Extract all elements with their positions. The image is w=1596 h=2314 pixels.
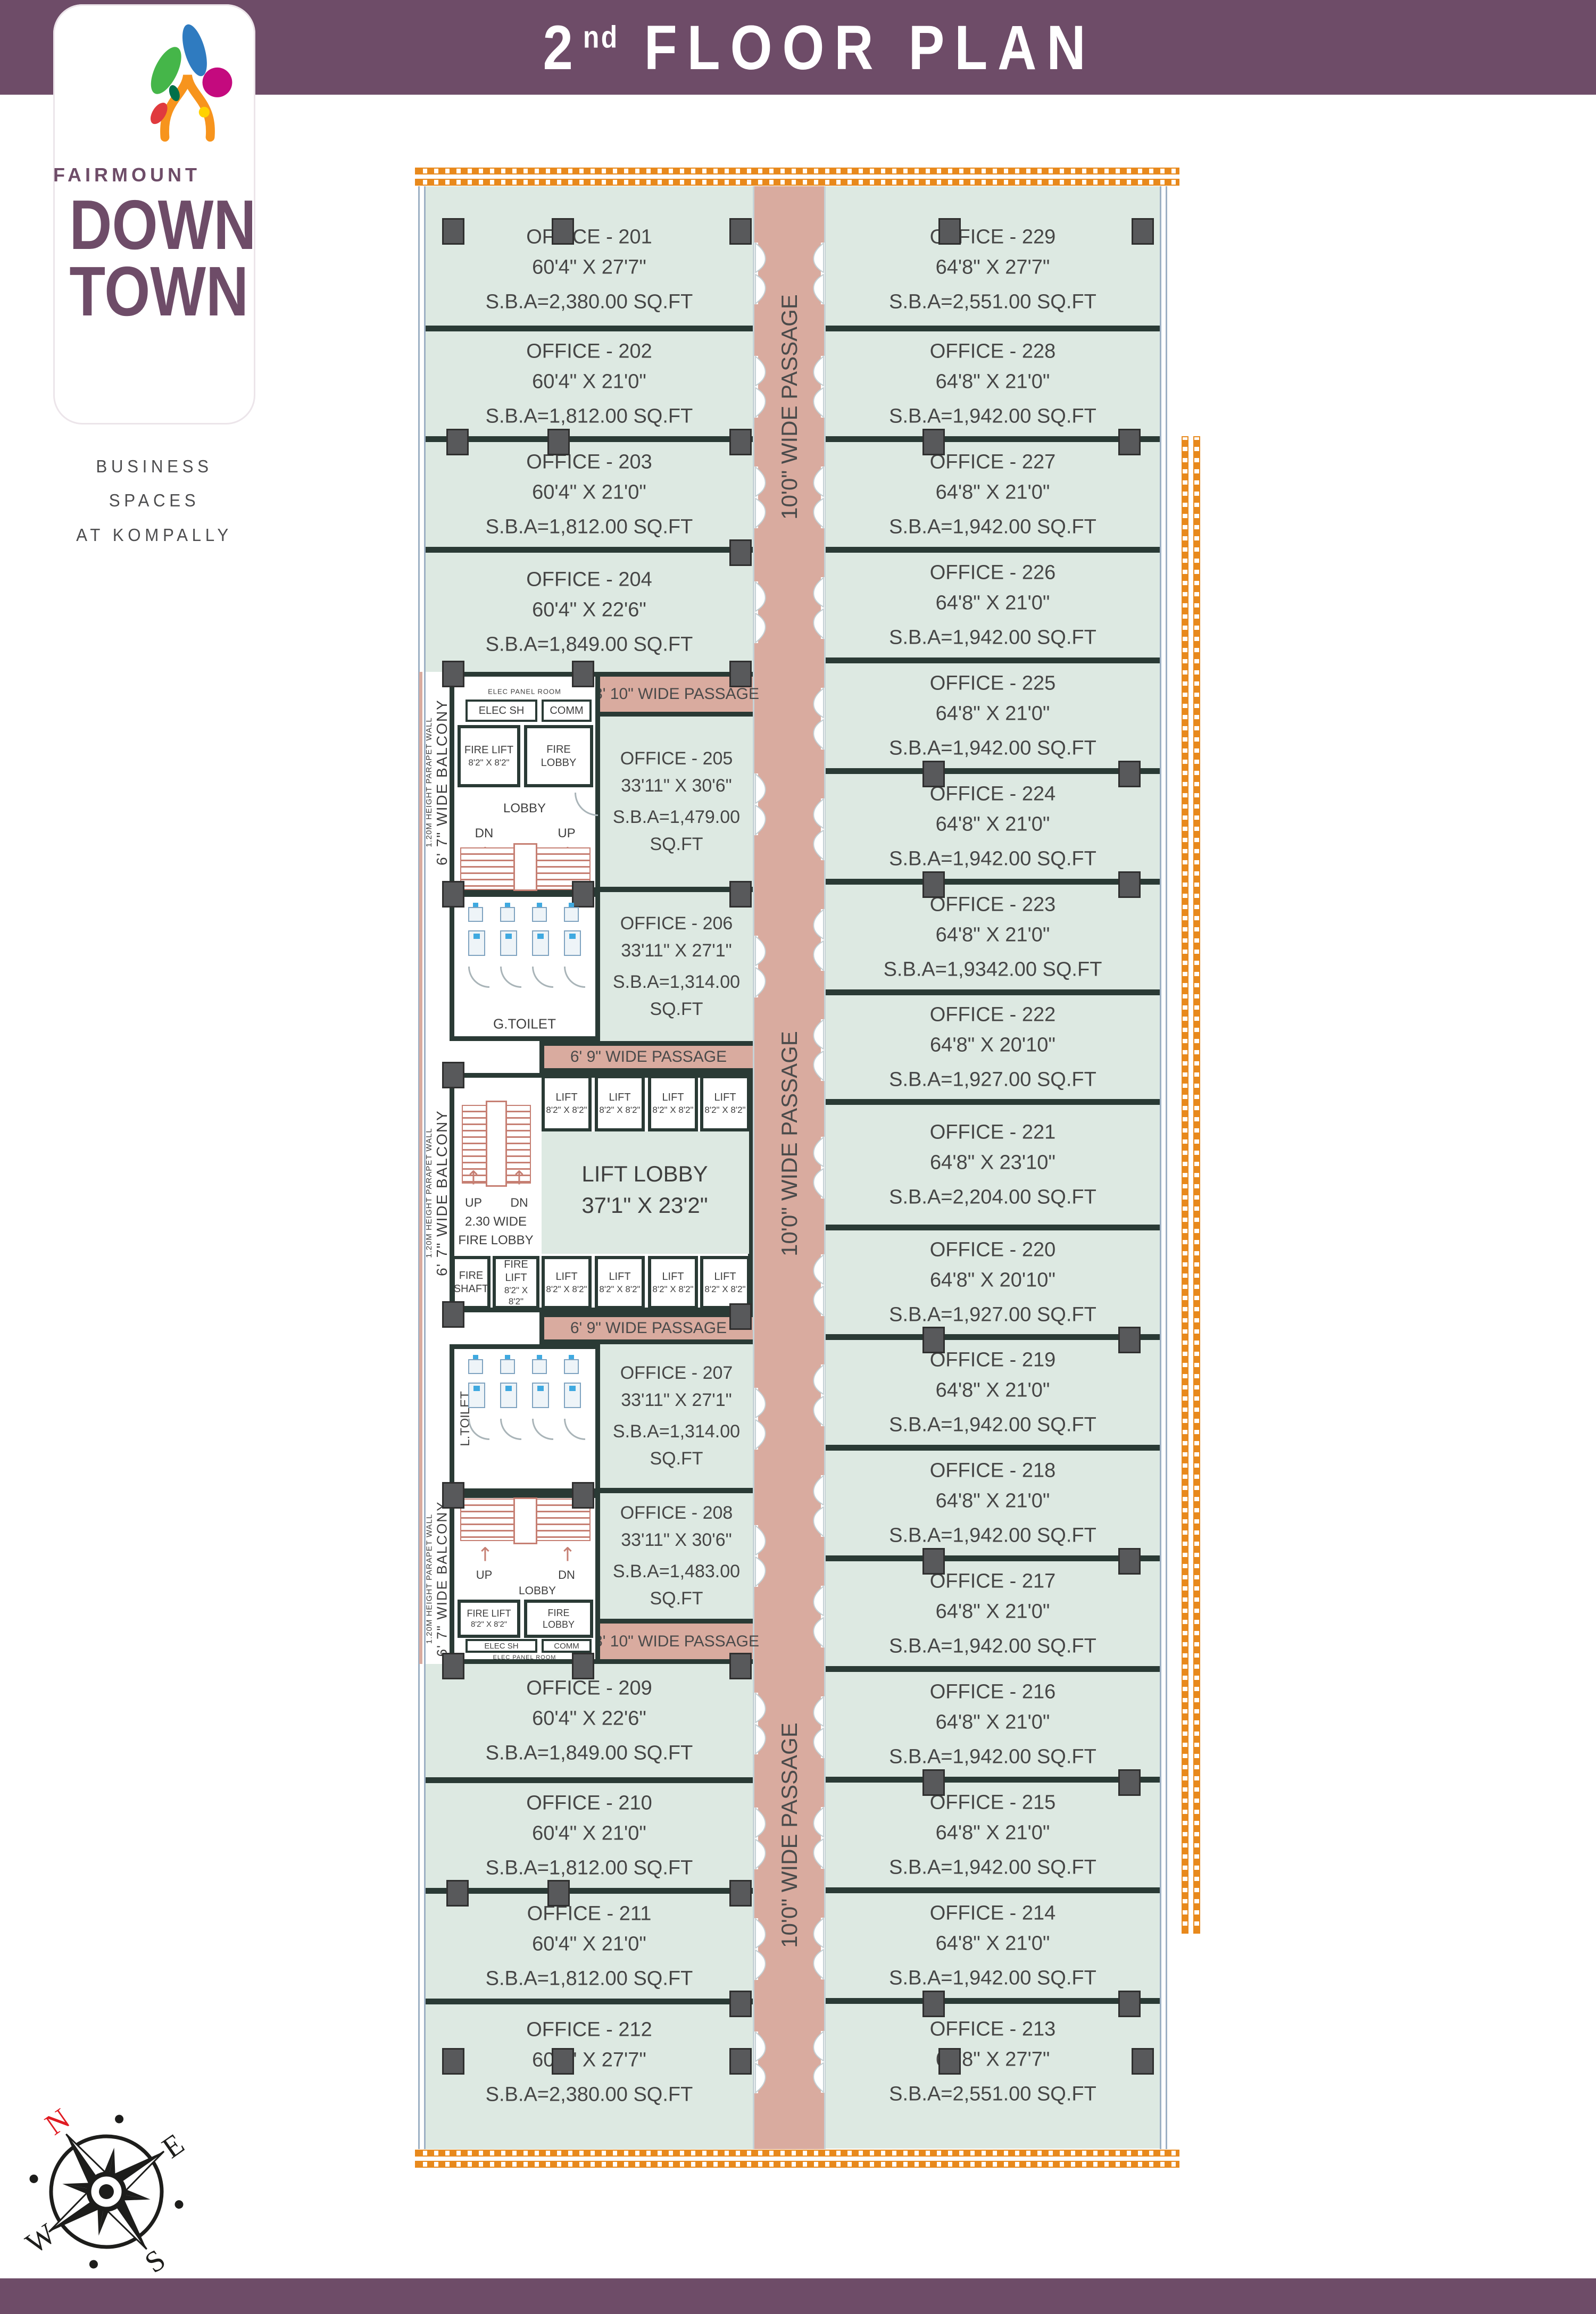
office-label-229: OFFICE - 22964'8" X 27'7"S.B.A=2,551.00 … (826, 222, 1160, 318)
column-pillar (442, 2048, 464, 2075)
stair-landing-bottom (513, 1497, 537, 1544)
office-label-228: OFFICE - 22864'8" X 21'0"S.B.A=1,942.00 … (826, 336, 1160, 431)
office-dims-214: 64'8" X 21'0" (826, 1928, 1160, 1959)
door-symbol-228 (807, 355, 825, 419)
office-name-217: OFFICE - 217 (826, 1566, 1160, 1596)
door-symbol-227 (807, 465, 825, 529)
office-row-204: OFFICE - 20460'4" X 22'6"S.B.A=1,849.00 … (426, 553, 753, 672)
office-dims-207: 33'11" X 27'1" (600, 1387, 753, 1414)
column-pillar (442, 1653, 464, 1679)
office-dims-223: 64'8" X 21'0" (826, 920, 1160, 950)
office-label-213: OFFICE - 21364'8" X 27'7"S.B.A=2,551.00 … (826, 2014, 1160, 2109)
fire-lift-label: FIRE LIFT (467, 1608, 511, 1620)
office-dims-220: 64'8" X 20'10" (826, 1265, 1160, 1295)
office-dims-209: 60'4" X 22'6" (426, 1703, 753, 1734)
office-label-216: OFFICE - 21664'8" X 21'0"S.B.A=1,942.00 … (826, 1677, 1160, 1772)
office-sba-205: S.B.A=1,479.00 SQ.FT (600, 804, 753, 858)
stair-arrow-up: ↑ (511, 1168, 527, 1189)
office-name-207: OFFICE - 207 (600, 1360, 753, 1387)
office-label-220: OFFICE - 22064'8" X 20'10"S.B.A=1,927.00… (826, 1235, 1160, 1330)
door-symbol-220 (807, 1253, 825, 1317)
office-dims-218: 64'8" X 21'0" (826, 1486, 1160, 1516)
office-name-218: OFFICE - 218 (826, 1455, 1160, 1486)
office-sba-204: S.B.A=1,849.00 SQ.FT (426, 630, 753, 660)
office-label-214: OFFICE - 21464'8" X 21'0"S.B.A=1,942.00 … (826, 1898, 1160, 1993)
up-label-top: UP (558, 826, 575, 841)
lift-cell-label: LIFT (609, 1270, 630, 1284)
office-dims-205: 33'11" X 30'6" (600, 772, 753, 800)
office-name-221: OFFICE - 221 (826, 1117, 1160, 1147)
page-title: 2nd FLOOR PLAN (543, 12, 1095, 84)
office-label-225: OFFICE - 22564'8" X 21'0"S.B.A=1,942.00 … (826, 668, 1160, 763)
office-label-211: OFFICE - 21160'4" X 21'0"S.B.A=1,812.00 … (426, 1899, 753, 1994)
compass-north-label: N (39, 2102, 76, 2142)
lift-cell-size: 8'2" X 8'2" (496, 1285, 536, 1308)
office-dims-219: 64'8" X 21'0" (826, 1375, 1160, 1405)
lobby-label-top: LOBBY (503, 801, 546, 816)
office-label-207: OFFICE - 20733'11" X 27'1"S.B.A=1,314.00… (600, 1360, 753, 1472)
flush-icon (505, 934, 512, 939)
column-pillar (552, 2048, 574, 2075)
flush-icon (537, 1386, 544, 1391)
tap-icon (505, 1355, 510, 1359)
office-name-220: OFFICE - 220 (826, 1235, 1160, 1265)
logo-card: FAIRMOUNT DOWN TOWN (53, 4, 255, 424)
office-name-216: OFFICE - 216 (826, 1677, 1160, 1707)
tap-icon (537, 903, 542, 907)
office-label-212: OFFICE - 21260'4" X 27'7"S.B.A=2,380.00 … (426, 2015, 753, 2110)
office-label-210: OFFICE - 21060'4" X 21'0"S.B.A=1,812.00 … (426, 1788, 753, 1883)
office-name-214: OFFICE - 214 (826, 1898, 1160, 1928)
column-pillar (1118, 1769, 1141, 1796)
dn-label-top: DN (475, 826, 494, 841)
office-name-215: OFFICE - 215 (826, 1787, 1160, 1818)
office-sba-202: S.B.A=1,812.00 SQ.FT (426, 401, 753, 431)
office-dims-210: 60'4" X 21'0" (426, 1818, 753, 1849)
door-symbol-218 (807, 1474, 825, 1538)
central-passage-label-middle: 10'0" WIDE PASSAGE (777, 1031, 802, 1256)
office-name-211: OFFICE - 211 (426, 1899, 753, 1929)
office-dims-228: 64'8" X 21'0" (826, 367, 1160, 397)
lift-cell-size: 8'2" X 8'2" (704, 1104, 745, 1116)
office-sba-227: S.B.A=1,942.00 SQ.FT (826, 512, 1160, 542)
office-label-208: OFFICE - 20833'11" X 30'6"S.B.A=1,483.00… (600, 1500, 753, 1612)
column-pillar (1118, 871, 1141, 898)
office-row-208: OFFICE - 20833'11" X 30'6"S.B.A=1,483.00… (600, 1493, 753, 1619)
door-symbol-205 (754, 772, 772, 836)
passage-69-top: 6' 9" WIDE PASSAGE (539, 1041, 753, 1073)
office-sba-201: S.B.A=2,380.00 SQ.FT (426, 287, 753, 318)
balcony-top: 1.20M HEIGHT PARAPET WALL 6' 7" WIDE BAL… (423, 672, 451, 892)
office-sba-219: S.B.A=1,942.00 SQ.FT (826, 1410, 1160, 1440)
sink-fixture (532, 1359, 547, 1374)
office-sba-212: S.B.A=2,380.00 SQ.FT (426, 2079, 753, 2110)
office-name-223: OFFICE - 223 (826, 889, 1160, 920)
office-label-219: OFFICE - 21964'8" X 21'0"S.B.A=1,942.00 … (826, 1345, 1160, 1440)
fire-lift-size: 8'2" X 8'2" (468, 757, 509, 768)
column-pillar (938, 218, 961, 245)
column-pillar (572, 1653, 594, 1679)
office-sba-217: S.B.A=1,942.00 SQ.FT (826, 1631, 1160, 1661)
door-symbol-204 (754, 580, 772, 644)
office-dims-215: 64'8" X 21'0" (826, 1818, 1160, 1848)
door-symbol-219 (807, 1363, 825, 1427)
office-name-224: OFFICE - 224 (826, 779, 1160, 809)
office-row-210: OFFICE - 21060'4" X 21'0"S.B.A=1,812.00 … (426, 1783, 753, 1894)
stair-arrow-up: ↑ (560, 1544, 576, 1566)
dn-label-middle: DN (510, 1196, 528, 1210)
office-sba-209: S.B.A=1,849.00 SQ.FT (426, 1738, 753, 1768)
office-name-201: OFFICE - 201 (426, 222, 753, 253)
office-row-211: OFFICE - 21160'4" X 21'0"S.B.A=1,812.00 … (426, 1894, 753, 2004)
door-symbol-214 (807, 1917, 825, 1980)
office-name-203: OFFICE - 203 (426, 447, 753, 477)
office-row-223: OFFICE - 22364'8" X 21'0"S.B.A=1,9342.00… (826, 885, 1160, 995)
office-row-201: OFFICE - 20160'4" X 27'7"S.B.A=2,380.00 … (426, 186, 753, 331)
office-sba-220: S.B.A=1,927.00 SQ.FT (826, 1300, 1160, 1330)
column-pillar (446, 1880, 469, 1907)
office-name-204: OFFICE - 204 (426, 565, 753, 595)
lift-lobby-dims: 37'1" X 23'2" (581, 1190, 708, 1221)
office-row-227: OFFICE - 22764'8" X 21'0"S.B.A=1,942.00 … (826, 442, 1160, 553)
office-name-228: OFFICE - 228 (826, 336, 1160, 367)
office-name-210: OFFICE - 210 (426, 1788, 753, 1818)
lift-cell-size: 8'2" X 8'2" (546, 1104, 587, 1116)
flush-icon (505, 1386, 512, 1391)
office-name-229: OFFICE - 229 (826, 222, 1160, 253)
top-wall-hatch-outer (415, 168, 1179, 174)
office-row-229: OFFICE - 22964'8" X 27'7"S.B.A=2,551.00 … (826, 186, 1160, 331)
office-label-202: OFFICE - 20260'4" X 21'0"S.B.A=1,812.00 … (426, 336, 753, 431)
sink-fixture (532, 907, 547, 922)
office-sba-222: S.B.A=1,927.00 SQ.FT (826, 1064, 1160, 1095)
compass-west-label: W (20, 2217, 62, 2260)
fire-lobby-bottom: FIRE LOBBY (524, 1600, 593, 1638)
door-symbol-201 (754, 242, 772, 305)
office-dims-206: 33'11" X 27'1" (600, 937, 753, 964)
column-pillar (922, 1769, 945, 1796)
tagline-line2: AT KOMPALLY (59, 518, 251, 552)
lift-cell: LIFT8'2" X 8'2" (542, 1075, 592, 1131)
column-pillar (1118, 1548, 1141, 1575)
fire-lift-bottom: FIRE LIFT 8'2" X 8'2" (458, 1600, 520, 1638)
footer-band (0, 2278, 1596, 2314)
door-symbol-208 (754, 1524, 772, 1588)
office-label-209: OFFICE - 20960'4" X 22'6"S.B.A=1,849.00 … (426, 1673, 753, 1768)
office-dims-212: 60'4" X 27'7" (426, 2045, 753, 2075)
office-sba-214: S.B.A=1,942.00 SQ.FT (826, 1963, 1160, 1993)
elec-panel-room-label-bottom: ELEC PANEL ROOM (493, 1654, 556, 1661)
office-label-204: OFFICE - 20460'4" X 22'6"S.B.A=1,849.00 … (426, 565, 753, 660)
office-row-213: OFFICE - 21364'8" X 27'7"S.B.A=2,551.00 … (826, 2004, 1160, 2149)
office-dims-216: 64'8" X 21'0" (826, 1707, 1160, 1737)
balcony-label: 6' 7" WIDE BALCONY (434, 1501, 450, 1657)
office-sba-224: S.B.A=1,942.00 SQ.FT (826, 844, 1160, 874)
tap-icon (473, 1355, 478, 1359)
comm-room-bottom: COMM (542, 1639, 592, 1653)
office-dims-203: 60'4" X 21'0" (426, 477, 753, 507)
column-pillar (442, 1301, 464, 1328)
office-row-209: OFFICE - 20960'4" X 22'6"S.B.A=1,849.00 … (426, 1664, 753, 1783)
sink-fixture (468, 907, 483, 922)
lift-cell-size: SHAFT (454, 1283, 489, 1296)
logo-word-town: TOWN (69, 258, 239, 324)
fire-lobby-230-label: 2.30 WIDE FIRE LOBBY (458, 1213, 533, 1250)
dn-label-bottom: DN (558, 1568, 575, 1582)
column-pillar (1118, 761, 1141, 787)
comm-room: COMM (542, 700, 592, 722)
office-dims-204: 60'4" X 22'6" (426, 595, 753, 626)
lift-cell-label: LIFT (555, 1091, 577, 1104)
fire-lift-top: FIRE LIFT 8'2" X 8'2" (458, 725, 520, 787)
column-pillar (922, 429, 945, 455)
door-symbol-226 (807, 576, 825, 640)
logo-brand: FAIRMOUNT (53, 164, 179, 186)
office-label-215: OFFICE - 21564'8" X 21'0"S.B.A=1,942.00 … (826, 1787, 1160, 1883)
office-label-205: OFFICE - 20533'11" X 30'6"S.B.A=1,479.00… (600, 745, 753, 858)
left-office-column-top: OFFICE - 20160'4" X 27'7"S.B.A=2,380.00 … (426, 186, 753, 672)
lift-cell-size: 8'2" X 8'2" (652, 1284, 693, 1295)
column-pillar (442, 1482, 464, 1509)
door-symbol-203 (754, 465, 772, 529)
balcony-parapet-wall (419, 672, 422, 1664)
office-name-222: OFFICE - 222 (826, 1000, 1160, 1030)
office-row-202: OFFICE - 20260'4" X 21'0"S.B.A=1,812.00 … (426, 331, 753, 442)
central-passage-label-top: 10'0" WIDE PASSAGE (777, 294, 802, 520)
column-pillar (729, 429, 752, 455)
tagline-line1: BUSINESS SPACES (59, 450, 251, 518)
office-row-203: OFFICE - 20360'4" X 21'0"S.B.A=1,812.00 … (426, 442, 753, 553)
office-sba-203: S.B.A=1,812.00 SQ.FT (426, 512, 753, 542)
lift-cell: LIFT8'2" X 8'2" (595, 1075, 645, 1131)
office-row-215: OFFICE - 21564'8" X 21'0"S.B.A=1,942.00 … (826, 1783, 1160, 1893)
door-symbol-229 (807, 242, 825, 305)
central-passage-label-bottom: 10'0" WIDE PASSAGE (777, 1722, 802, 1948)
office-sba-210: S.B.A=1,812.00 SQ.FT (426, 1853, 753, 1883)
right-office-column: OFFICE - 22964'8" X 27'7"S.B.A=2,551.00 … (826, 186, 1160, 2149)
column-pillar (922, 871, 945, 898)
fire-lobby-label: FIRE (547, 1607, 569, 1619)
lift-lobby-name: LIFT LOBBY (581, 1159, 708, 1190)
column-pillar (1118, 1327, 1141, 1353)
fire-lift-label: FIRE LIFT (464, 744, 513, 757)
tap-icon (569, 1355, 574, 1359)
fire-lobby-label: FIRE (546, 743, 571, 756)
sink-fixture (564, 907, 579, 922)
logo-flower-icon (128, 23, 247, 148)
column-pillar (729, 1653, 752, 1679)
door-symbol-210 (754, 1807, 772, 1870)
up-label-middle: UP (465, 1196, 482, 1210)
office-name-226: OFFICE - 226 (826, 557, 1160, 588)
office-label-226: OFFICE - 22664'8" X 21'0"S.B.A=1,942.00 … (826, 557, 1160, 653)
lobby-label-bottom: LOBBY (519, 1585, 556, 1597)
door-symbol-213 (807, 2030, 825, 2094)
door-symbol-225 (807, 687, 825, 751)
lift-cell-size: 8'2" X 8'2" (704, 1284, 745, 1295)
door-symbol-224 (807, 797, 825, 861)
office-sba-211: S.B.A=1,812.00 SQ.FT (426, 1963, 753, 1994)
office-label-221: OFFICE - 22164'8" X 23'10"S.B.A=2,204.00… (826, 1117, 1160, 1212)
top-wall-hatch-inner (415, 179, 1179, 186)
flush-icon (473, 1386, 480, 1391)
column-pillar (729, 1880, 752, 1907)
flush-icon (569, 1386, 576, 1391)
door-symbol-207 (754, 1387, 772, 1451)
compass-east-label: E (156, 2127, 190, 2165)
balcony-bottom: 1.20M HEIGHT PARAPET WALL 6' 7" WIDE BAL… (423, 1493, 451, 1664)
door-symbol-216 (807, 1695, 825, 1759)
lift-cell-label: LIFT (609, 1091, 630, 1104)
column-pillar (922, 1327, 945, 1353)
office-row-218: OFFICE - 21864'8" X 21'0"S.B.A=1,942.00 … (826, 1451, 1160, 1561)
office-sba-213: S.B.A=2,551.00 SQ.FT (826, 2079, 1160, 2109)
column-pillar (729, 1303, 752, 1330)
lift-cell-size: 8'2" X 8'2" (599, 1284, 640, 1295)
flush-icon (537, 934, 544, 939)
column-pillar (729, 661, 752, 687)
office-name-208: OFFICE - 208 (600, 1500, 753, 1527)
column-pillar (729, 539, 752, 566)
elec-panel-room-label: ELEC PANEL ROOM (488, 688, 561, 696)
column-pillar (1118, 1991, 1141, 2017)
balcony-middle: 1.20M HEIGHT PARAPET WALL 6' 7" WIDE BAL… (423, 1073, 451, 1312)
parapet-label: 1.20M HEIGHT PARAPET WALL (425, 699, 434, 865)
office-sba-216: S.B.A=1,942.00 SQ.FT (826, 1742, 1160, 1772)
office-row-220: OFFICE - 22064'8" X 20'10"S.B.A=1,927.00… (826, 1230, 1160, 1340)
sink-fixture (500, 1359, 515, 1374)
office-row-217: OFFICE - 21764'8" X 21'0"S.B.A=1,942.00 … (826, 1561, 1160, 1672)
office-label-201: OFFICE - 20160'4" X 27'7"S.B.A=2,380.00 … (426, 222, 753, 318)
lift-cell: LIFT8'2" X 8'2" (542, 1256, 592, 1309)
column-pillar (729, 1991, 752, 2017)
column-pillar (1132, 2048, 1154, 2075)
office-row-228: OFFICE - 22864'8" X 21'0"S.B.A=1,942.00 … (826, 331, 1160, 442)
right-outer-wall (1160, 186, 1167, 2149)
office-row-225: OFFICE - 22564'8" X 21'0"S.B.A=1,942.00 … (826, 663, 1160, 774)
office-row-205: OFFICE - 20533'11" X 30'6"S.B.A=1,479.00… (600, 717, 753, 892)
office-dims-226: 64'8" X 21'0" (826, 588, 1160, 618)
tap-icon (505, 903, 510, 907)
column-pillar (552, 218, 574, 245)
office-label-227: OFFICE - 22764'8" X 21'0"S.B.A=1,942.00 … (826, 447, 1160, 542)
column-pillar (442, 661, 464, 687)
office-sba-215: S.B.A=1,942.00 SQ.FT (826, 1852, 1160, 1883)
office-row-207: OFFICE - 20733'11" X 27'1"S.B.A=1,314.00… (600, 1344, 753, 1493)
office-sba-228: S.B.A=1,942.00 SQ.FT (826, 401, 1160, 431)
office-dims-225: 64'8" X 21'0" (826, 698, 1160, 729)
door-symbol-217 (807, 1585, 825, 1649)
column-pillar (922, 1991, 945, 2017)
stair-arrow-up: ↑ (477, 1544, 493, 1566)
column-pillar (442, 881, 464, 908)
lift-lobby-label: LIFT LOBBY 37'1" X 23'2" (581, 1159, 708, 1221)
column-pillar (547, 1880, 570, 1907)
page: 2nd FLOOR PLAN FAIRMOUNT DOWN TOWN BUSIN… (0, 0, 1596, 2314)
lift-cell: LIFT8'2" X 8'2" (595, 1256, 645, 1309)
lift-cell: LIFT8'2" X 8'2" (700, 1075, 750, 1131)
lift-cell: LIFT8'2" X 8'2" (648, 1256, 698, 1309)
tap-icon (473, 903, 478, 907)
office-name-225: OFFICE - 225 (826, 668, 1160, 698)
column-pillar (572, 661, 594, 687)
office-name-206: OFFICE - 206 (600, 910, 753, 937)
logo-word-down: DOWN (69, 192, 239, 258)
elec-sh-room-bottom: ELEC SH (465, 1639, 537, 1653)
office-name-219: OFFICE - 219 (826, 1345, 1160, 1375)
office-sba-229: S.B.A=2,551.00 SQ.FT (826, 287, 1160, 318)
lift-cell-label: LIFT (662, 1091, 684, 1104)
sink-fixture (468, 1359, 483, 1374)
lift-cell-label: LIFT (555, 1270, 577, 1284)
flush-icon (569, 934, 576, 939)
elec-sh-room: ELEC SH (465, 700, 537, 722)
office-name-205: OFFICE - 205 (600, 745, 753, 772)
office-label-218: OFFICE - 21864'8" X 21'0"S.B.A=1,942.00 … (826, 1455, 1160, 1551)
compass-rose: N E S W (19, 2093, 194, 2290)
office-label-217: OFFICE - 21764'8" X 21'0"S.B.A=1,942.00 … (826, 1566, 1160, 1661)
lift-cell-label: LIFT (714, 1270, 736, 1284)
column-pillar (922, 1548, 945, 1575)
office-name-213: OFFICE - 213 (826, 2014, 1160, 2044)
up-label-bottom: UP (476, 1568, 493, 1582)
column-pillar (1132, 218, 1154, 245)
office-label-222: OFFICE - 22264'8" X 20'10"S.B.A=1,927.00… (826, 1000, 1160, 1095)
logo-tagline: BUSINESS SPACES AT KOMPALLY (59, 450, 251, 552)
column-pillar (1118, 429, 1141, 455)
door-symbol-215 (807, 1806, 825, 1870)
office-dims-201: 60'4" X 27'7" (426, 253, 753, 283)
tap-icon (537, 1355, 542, 1359)
fire-lobby-230-line2: FIRE LOBBY (458, 1231, 533, 1250)
column-pillar (729, 218, 752, 245)
door-symbol-202 (754, 355, 772, 419)
door-symbol-209 (754, 1692, 772, 1755)
column-pillar (442, 1062, 464, 1088)
office-sba-221: S.B.A=2,204.00 SQ.FT (826, 1182, 1160, 1212)
door-symbol-211 (754, 1917, 772, 1981)
office-dims-222: 64'8" X 20'10" (826, 1030, 1160, 1060)
column-pillar (572, 1482, 594, 1509)
fire-lobby-label2: LOBBY (541, 756, 577, 770)
office-sba-223: S.B.A=1,9342.00 SQ.FT (826, 954, 1160, 985)
office-sba-225: S.B.A=1,942.00 SQ.FT (826, 733, 1160, 763)
office-label-223: OFFICE - 22364'8" X 21'0"S.B.A=1,9342.00… (826, 889, 1160, 985)
office-row-212: OFFICE - 21260'4" X 27'7"S.B.A=2,380.00 … (426, 2004, 753, 2149)
column-pillar (547, 429, 570, 455)
g-toilet-label: G.TOILET (493, 1016, 556, 1033)
office-name-212: OFFICE - 212 (426, 2015, 753, 2045)
lift-cell-size: 8'2" X 8'2" (599, 1104, 640, 1116)
office-dims-217: 64'8" X 21'0" (826, 1596, 1160, 1627)
lift-cell-label: LIFT (662, 1270, 684, 1284)
office-label-203: OFFICE - 20360'4" X 21'0"S.B.A=1,812.00 … (426, 447, 753, 542)
office-dims-211: 60'4" X 21'0" (426, 1929, 753, 1959)
fire-lobby-230-line1: 2.30 WIDE (458, 1213, 533, 1231)
lift-cell: LIFT8'2" X 8'2" (700, 1256, 750, 1309)
door-symbol-222 (807, 1018, 825, 1082)
office-row-221: OFFICE - 22164'8" X 23'10"S.B.A=2,204.00… (826, 1105, 1160, 1230)
office-sba-218: S.B.A=1,942.00 SQ.FT (826, 1520, 1160, 1551)
flush-icon (473, 934, 480, 939)
lift-cell-label: LIFT (714, 1091, 736, 1104)
lift-cell-size: 8'2" X 8'2" (546, 1284, 587, 1295)
office-row-216: OFFICE - 21664'8" X 21'0"S.B.A=1,942.00 … (826, 1672, 1160, 1783)
passage-69-bottom: 6' 9" WIDE PASSAGE (539, 1312, 753, 1344)
office-row-219: OFFICE - 21964'8" X 21'0"S.B.A=1,942.00 … (826, 1340, 1160, 1451)
office-sba-226: S.B.A=1,942.00 SQ.FT (826, 622, 1160, 653)
office-row-214: OFFICE - 21464'8" X 21'0"S.B.A=1,942.00 … (826, 1893, 1160, 2004)
